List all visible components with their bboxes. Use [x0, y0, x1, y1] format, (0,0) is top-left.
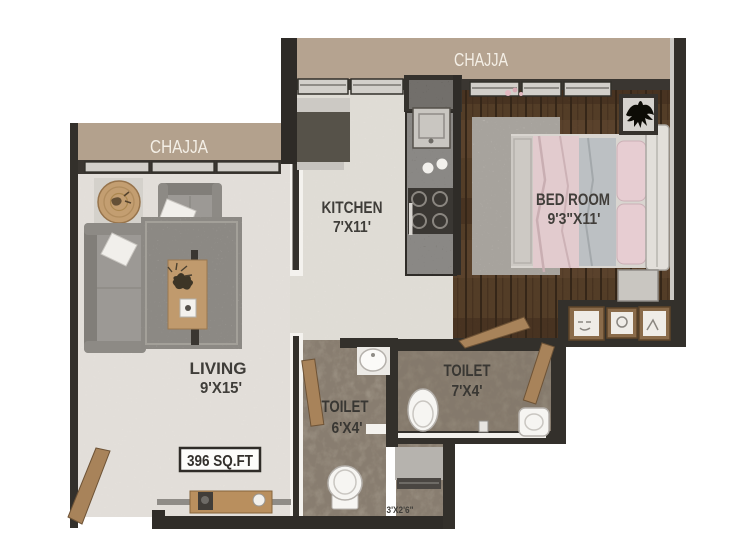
- svg-text:LIVING: LIVING: [190, 360, 247, 378]
- svg-text:BED ROOM: BED ROOM: [536, 191, 610, 209]
- svg-text:3'X2'6": 3'X2'6": [387, 505, 414, 515]
- svg-text:396 SQ.FT: 396 SQ.FT: [187, 453, 253, 470]
- svg-text:9'3"X11': 9'3"X11': [548, 211, 601, 228]
- svg-text:KITCHEN: KITCHEN: [322, 199, 383, 217]
- svg-text:9'X15': 9'X15': [200, 380, 242, 397]
- svg-text:7'X11': 7'X11': [333, 219, 371, 236]
- svg-text:7'X4': 7'X4': [452, 383, 483, 400]
- svg-text:CHAJJA: CHAJJA: [150, 136, 209, 157]
- svg-text:CHAJJA: CHAJJA: [454, 49, 509, 70]
- svg-text:6'X4': 6'X4': [332, 420, 363, 437]
- svg-text:TOILET: TOILET: [444, 362, 491, 380]
- svg-text:TOILET: TOILET: [322, 398, 369, 416]
